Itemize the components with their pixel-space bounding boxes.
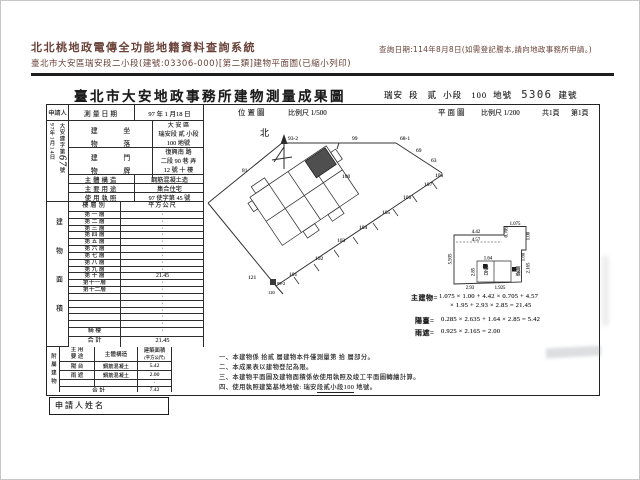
building-site-value: 大 安 區 瑞安段 貳 小段 100 地號 — [153, 121, 204, 147]
dim-label: 1.925 — [495, 286, 506, 291]
dim-label: 4.42 — [472, 230, 481, 235]
survey-date-value: 97 年 1 月18 日 — [135, 105, 204, 120]
floor-row: 第 五 層· — [69, 239, 204, 246]
dim-label: 4.57 — [472, 238, 481, 243]
land-building-reference: 瑞安段 貳小段 100地號 5306建號 — [384, 89, 584, 101]
survey-chart-title: 臺北市大安地政事務所建物測量成果圖 — [74, 85, 346, 105]
handwritten-number: 67 — [57, 155, 68, 167]
annex-header: 主 用要 途 主體構造 建築面積(平方公尺) — [60, 347, 171, 362]
floor-row: 第 七 層· — [69, 253, 204, 260]
floor-row: · — [69, 314, 204, 321]
query-date: 查詢日期:114年8月8日(如需登記謄本,請向地政事務所申請。) — [379, 44, 592, 55]
applicant-label: 申請人 — [47, 105, 69, 121]
section-name: 瑞安 — [384, 90, 403, 100]
receive-number-cell: 97年1月14日 大安建字第67號 — [47, 121, 69, 202]
floor-area-table: 樓層別 平方公尺 第 一 層· 第 二 層· 第 三 層· 第 四 層· 第 五… — [69, 202, 204, 347]
sub-section: 貳 — [428, 90, 438, 100]
dim-label: 1.60 — [522, 252, 527, 261]
floor-row: 第 二 層· — [69, 219, 204, 226]
block-corner-mark — [270, 279, 276, 285]
parcel-label: 68-1 — [400, 136, 410, 142]
building-area-side-label: 建物面積 — [47, 202, 69, 347]
note-3: 三、本建物平面圖及建物面積係依使用執照及竣工平面圖轉繪計算。 — [219, 372, 420, 381]
dim-label: 2.93 — [466, 286, 475, 291]
floor-row: 第 九 層· — [69, 267, 204, 274]
annex-row-balcony: 陽 台鋼筋混凝土5.42 — [60, 362, 171, 371]
parcel-label: 105 — [382, 210, 391, 216]
annex-row-canopy: 雨 遮鋼筋混凝土2.00 — [60, 371, 171, 380]
dim-label: 1.00 — [527, 231, 532, 240]
note-2: 二、本成果表以建物登記為限。 — [219, 362, 313, 371]
balcony-formula-label: 陽臺= — [415, 316, 435, 326]
receive-doc-number: 大安建字第67號 — [57, 123, 68, 201]
annex-row-empty: · — [60, 380, 171, 387]
dim-label: 1.075 — [510, 222, 521, 227]
parcel-label: 106 — [403, 195, 412, 201]
parcel-label: 107 — [424, 182, 433, 188]
building-address-label: 建門 物牌 — [69, 148, 153, 178]
annex-side-label: 附屬建物 — [47, 347, 60, 392]
survey-date-label: 測量日期 — [69, 105, 135, 120]
land-number: 100 — [471, 90, 487, 100]
floor-table-header: 樓層別 平方公尺 — [69, 202, 204, 212]
note-4: 四、使用執照建築基地地號: 瑞安段貳小段100 地號。 — [219, 382, 376, 391]
page: 北北桃地政電傳全功能地籍資料查詢系統 查詢日期:114年8月8日(如需登記謄本,… — [0, 0, 640, 480]
note-1: 一、本建物係 拾貳 層建物本件僅測量第 拾 層部分。 — [219, 352, 374, 361]
canopy-label: 雨遮 — [515, 266, 521, 277]
usage-label: 主要用途 — [69, 184, 135, 192]
license-label: 使用執照 — [69, 193, 135, 201]
system-title: 北北桃地政電傳全功能地籍資料查詢系統 — [31, 39, 256, 55]
floor-row: 第十一層· — [69, 280, 204, 287]
north-label: 北 — [260, 128, 269, 138]
floor-row: · — [69, 321, 204, 328]
floor-row: 第 一 層· — [69, 212, 204, 219]
balcony-label: 陽台 — [483, 264, 489, 276]
plan-dimensions: 4.42 0.705 1.075 1.00 4.57 5.935 1.64 2.… — [449, 222, 532, 291]
arcade-row: 騎 樓· — [69, 328, 204, 337]
floor-row: · — [69, 294, 204, 301]
floor-row-tenth: 第 十 層21.45 — [69, 273, 204, 280]
parcel-label: 104 — [359, 225, 368, 231]
header-divider — [31, 73, 614, 76]
document-description: 臺北市大安區瑞安段二小段(建號:03306-000)[第二類]建物平面圖(已縮小… — [31, 57, 351, 69]
floor-row: · — [69, 301, 204, 308]
canopy-formula: 0.925 × 2.165 = 2.00 — [441, 328, 500, 335]
dim-label: 2.85 — [472, 267, 477, 276]
parcel-label: 100 — [342, 174, 351, 180]
floor-total-row: 合 計21.45 — [69, 337, 204, 347]
floor-row: 第十二層· — [69, 287, 204, 294]
parcel-label: 103 — [337, 238, 346, 244]
parcel-label: 108 — [435, 173, 444, 179]
parcel-label: 93-2 — [288, 136, 298, 142]
structure-label: 主體構造 — [69, 175, 135, 183]
annex-total-row: 合 計 7.42 — [60, 387, 171, 392]
underlined-land-ref: 段貳小段100 — [317, 384, 354, 393]
parcel-label: 121 — [248, 275, 257, 281]
floor-row: 第 八 層· — [69, 260, 204, 267]
dim-label: 5.935 — [449, 253, 454, 264]
building-address-value: 復興南 路 二段 90 巷 弄 12 號 十 樓 — [153, 148, 204, 174]
dim-label: 2.165 — [527, 262, 532, 273]
parcel-label: 102 — [315, 256, 324, 262]
annex-table: 附屬建物 主 用要 途 主體構造 建築面積(平方公尺) 陽 台鋼筋混凝土5.42… — [47, 347, 172, 392]
balcony-formula: 0.285 × 2.635 + 1.64 × 2.85 = 5.42 — [441, 316, 540, 323]
scan-smudge — [602, 256, 609, 326]
floor-row: 第 六 層· — [69, 246, 204, 253]
drawing-area: 北 — [204, 105, 599, 392]
main-building-formula-line1: 1.075 × 1.00 + 4.42 × 0.705 + 4.57 — [439, 293, 538, 300]
building-site-label: 建坐 物落 — [69, 121, 153, 151]
left-field-table: 測量日期 97 年 1 月18 日 建坐 物落 大 安 區 瑞安段 貳 小段 1… — [69, 105, 204, 347]
parcel-label: 101 — [289, 272, 298, 278]
main-building-formula-line2: × 1.95 + 2.93 × 2.85 = 21.45 — [450, 302, 531, 309]
parcel-label: 69 — [416, 148, 422, 154]
building-number: 5306 — [521, 89, 552, 101]
receive-date: 97年1月14日 — [48, 123, 56, 201]
parcel-label: 63 — [431, 158, 437, 164]
parcel-label: 81 — [242, 168, 248, 174]
license-value: 97 使字第 45 號 — [135, 193, 204, 201]
floor-row: 第 四 層· — [69, 232, 204, 239]
floor-row: · — [69, 308, 204, 315]
canopy-formula-label: 雨遮= — [415, 328, 435, 338]
parcel-label: 120 — [268, 290, 276, 295]
parcel-label: 99 — [352, 136, 358, 142]
dim-label: 1.64 — [484, 257, 493, 262]
dim-label: 0.705 — [505, 226, 510, 237]
floor-row: 第 三 層· — [69, 226, 204, 233]
main-building-formula-label: 主建物= — [411, 293, 438, 303]
parcel-label: 99-2 — [277, 281, 285, 286]
applicant-name-box: 申請人姓名 — [49, 397, 169, 415]
structure-value: 鋼筋混凝土造 — [135, 175, 204, 183]
usage-value: 集合住宅 — [135, 184, 204, 192]
